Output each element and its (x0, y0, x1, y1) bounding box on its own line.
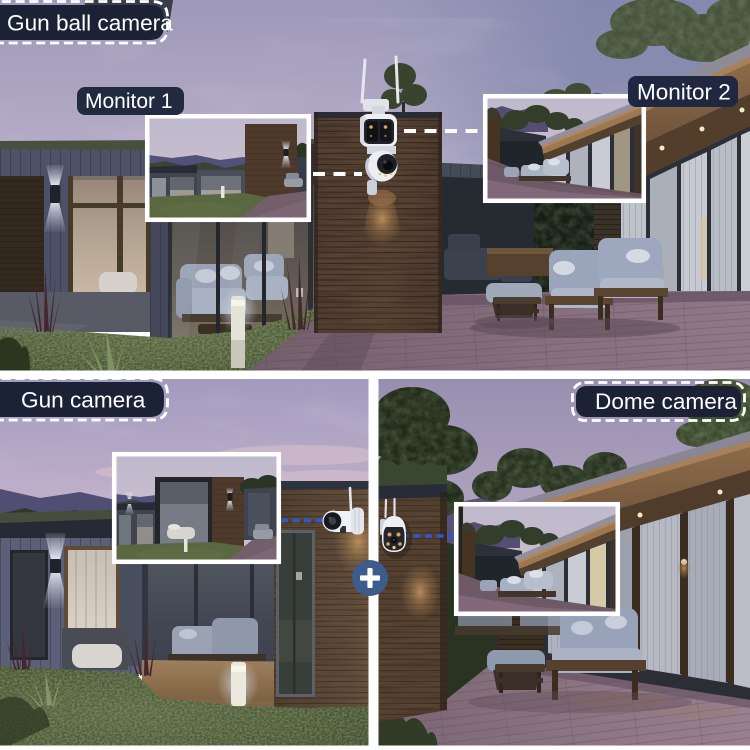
svg-text:Monitor 1: Monitor 1 (85, 90, 173, 113)
svg-text:Gun ball camera: Gun ball camera (7, 11, 173, 36)
svg-text:Monitor 2: Monitor 2 (637, 80, 731, 105)
svg-text:Gun camera: Gun camera (21, 388, 146, 413)
svg-text:Dome camera: Dome camera (595, 389, 737, 414)
